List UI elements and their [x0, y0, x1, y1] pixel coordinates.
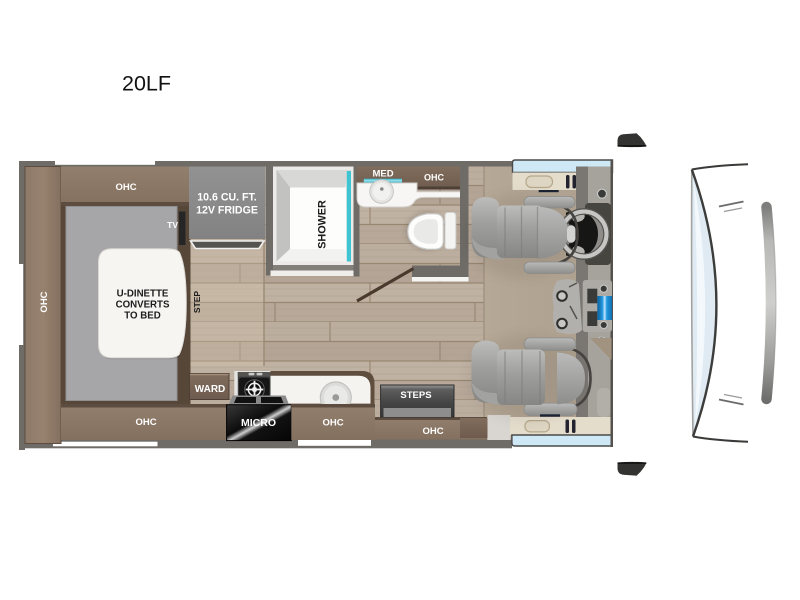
svg-text:U-DINETTE: U-DINETTE	[117, 289, 169, 300]
svg-text:OHC: OHC	[39, 291, 50, 312]
svg-text:STEP: STEP	[192, 291, 202, 314]
svg-text:OHC: OHC	[424, 173, 445, 183]
svg-text:TO BED: TO BED	[124, 311, 160, 322]
svg-text:STEPS: STEPS	[400, 390, 431, 401]
svg-text:TV: TV	[167, 220, 178, 230]
svg-text:CONVERTS: CONVERTS	[116, 300, 170, 311]
svg-text:SHOWER: SHOWER	[317, 200, 329, 249]
svg-text:OHC: OHC	[135, 417, 156, 428]
svg-text:MICRO: MICRO	[241, 417, 276, 429]
svg-text:12V FRIDGE: 12V FRIDGE	[196, 205, 258, 217]
svg-text:OHC: OHC	[422, 426, 443, 437]
svg-text:20LF: 20LF	[122, 72, 171, 96]
svg-text:10.6 CU. FT.: 10.6 CU. FT.	[197, 192, 257, 204]
svg-text:MED: MED	[372, 169, 393, 180]
svg-text:WARD: WARD	[195, 384, 226, 395]
svg-text:OHC: OHC	[322, 418, 343, 429]
svg-text:OHC: OHC	[115, 182, 136, 193]
